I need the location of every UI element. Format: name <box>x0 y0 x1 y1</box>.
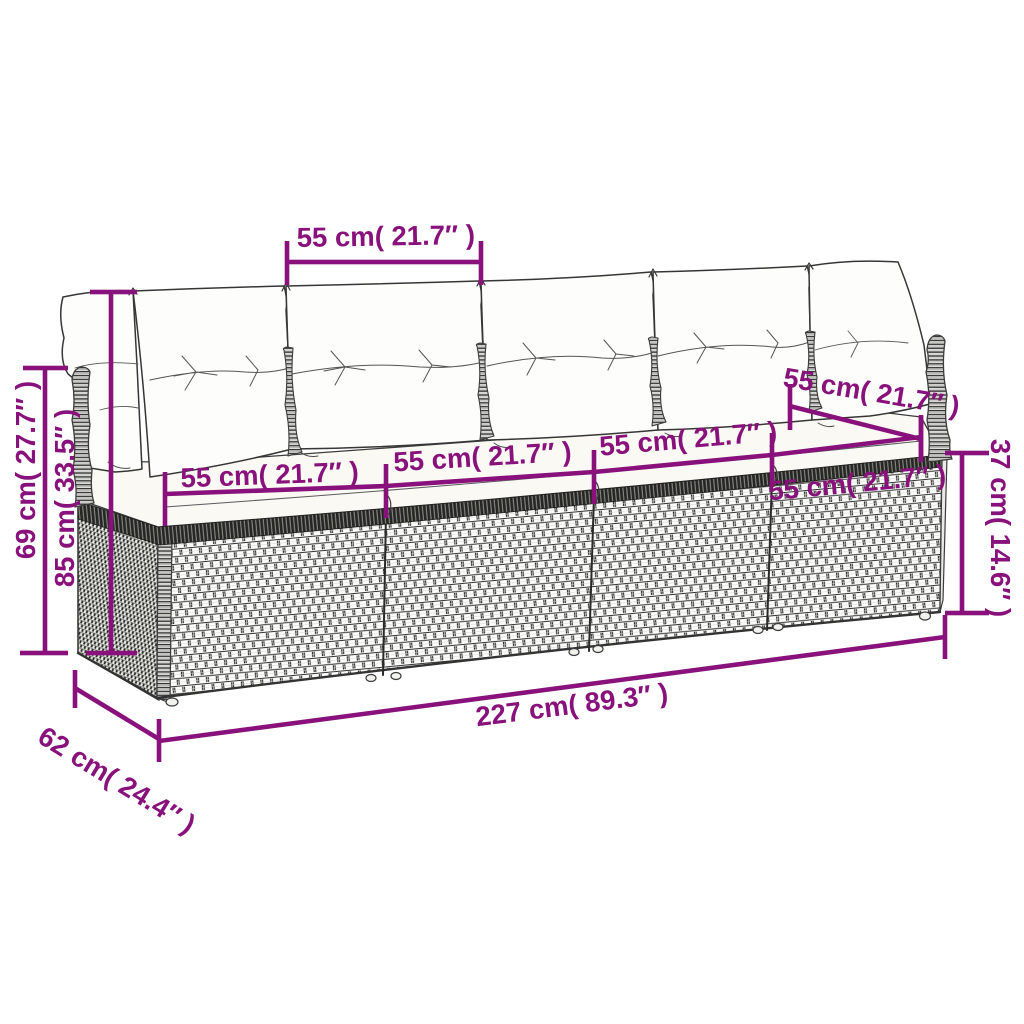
svg-text:85 cm( 33.5″ ): 85 cm( 33.5″ ) <box>49 409 80 587</box>
svg-text:69 cm( 27.7″ ): 69 cm( 27.7″ ) <box>10 381 41 559</box>
svg-text:55 cm( 21.7″ ): 55 cm( 21.7″ ) <box>296 219 475 253</box>
svg-text:37 cm( 14.6″ ): 37 cm( 14.6″ ) <box>985 439 1016 617</box>
